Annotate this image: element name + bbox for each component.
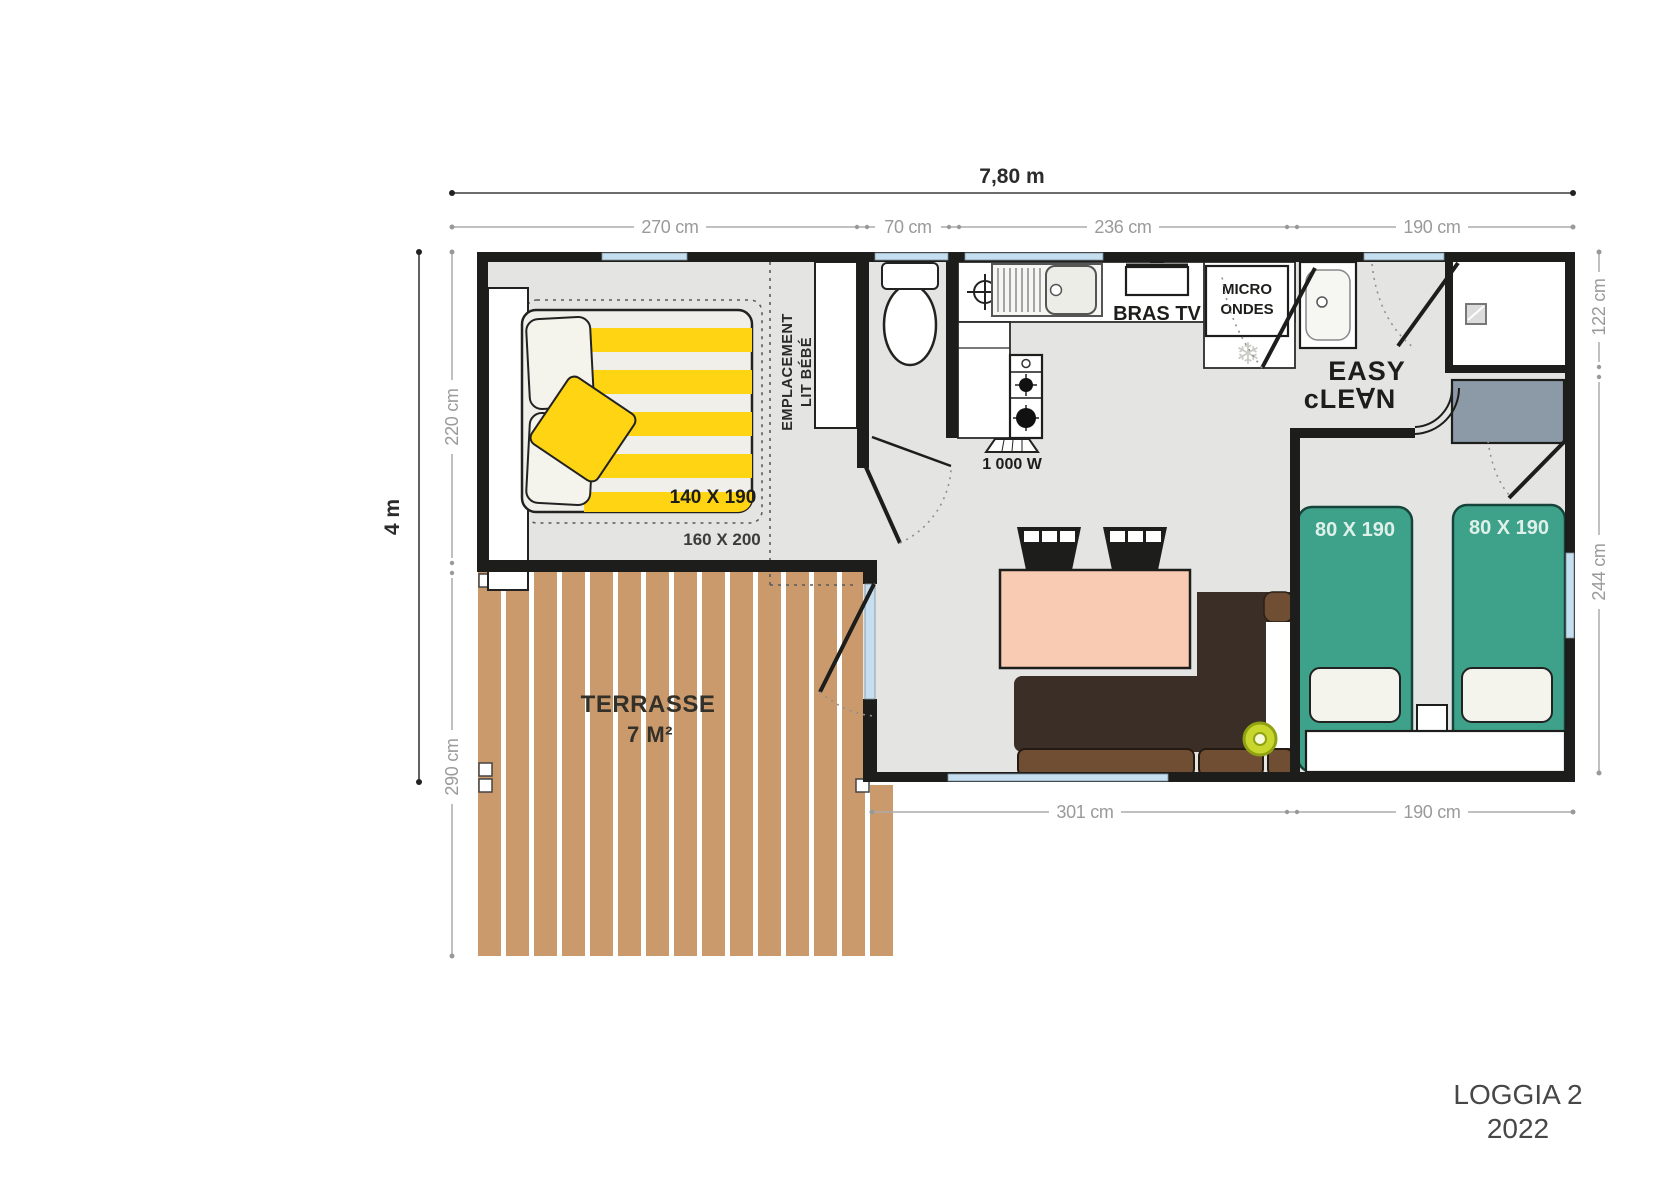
double-bed-size-label: 140 X 190 [670, 487, 757, 508]
stool-icon-center [1254, 733, 1266, 745]
fridge-snowflake-icon: ❄ [1235, 338, 1260, 371]
single-bed1-size-label: 80 X 190 [1315, 519, 1395, 541]
dim-top-4: 190 cm [1403, 217, 1460, 237]
toilet-icon [884, 285, 936, 365]
dim-top-3: 236 cm [1094, 217, 1151, 237]
dim-left-lower: 290 cm [442, 738, 462, 795]
microwave-label-line1: MICRO [1222, 281, 1272, 298]
plan-year: 2022 [1487, 1113, 1549, 1144]
window-bedroom2 [1566, 553, 1574, 638]
dim-right-lower: 244 cm [1589, 543, 1609, 600]
dim-top-2: 70 cm [884, 217, 932, 237]
terrace-planks-right [865, 785, 897, 956]
dim-left-upper: 220 cm [442, 388, 462, 445]
sink-drain-icon [1051, 285, 1062, 296]
window-wc [875, 253, 948, 260]
baby-cot-label-line1: EMPLACEMENT [780, 313, 796, 430]
terrace-deck: TERRASSE 7 M² [478, 572, 897, 956]
dim-right-upper: 122 cm [1589, 278, 1609, 335]
baby-cot-label-line2: LIT BÉBÉ [798, 337, 815, 407]
terrace-label: TERRASSE [581, 691, 716, 718]
floorplan-drawing: TERRASSE 7 M² 160 X 200 EMPLACEMENT LIT … [0, 0, 1666, 1178]
dim-overall-width: 7,80 m [979, 165, 1044, 188]
wc-room [882, 263, 938, 365]
terrace-post-icon [479, 779, 492, 792]
dining-chair-icon [1017, 527, 1081, 570]
foot-bench [1306, 731, 1565, 772]
pillow [1462, 668, 1552, 722]
dim-overall-depth: 4 m [381, 499, 404, 535]
easy-clean-logo-line2: cLE∀N [1304, 384, 1397, 414]
sink-icon [992, 264, 1102, 316]
plan-title: LOGGIA 2 [1453, 1079, 1582, 1110]
dim-bottom-left: 301 cm [1056, 802, 1113, 822]
dim-top-1: 270 cm [641, 217, 698, 237]
dining-table [1000, 570, 1190, 668]
bed-zone-label: 160 X 200 [683, 530, 761, 549]
toilet-tank-icon [882, 263, 938, 289]
terrace-post-icon [479, 763, 492, 776]
floorplan-page: TERRASSE 7 M² 160 X 200 EMPLACEMENT LIT … [0, 0, 1666, 1178]
single-bed2-size-label: 80 X 190 [1469, 517, 1549, 539]
dim-bottom-right: 190 cm [1403, 802, 1460, 822]
microwave-label-line2: ONDES [1220, 301, 1273, 318]
stove-icon [1010, 355, 1042, 438]
sofa-cushion [1268, 749, 1293, 776]
window-kitchen [965, 253, 1103, 260]
easy-clean-logo-line1: EASY [1328, 356, 1406, 386]
window-bathroom [1364, 253, 1444, 260]
terrace-planks [478, 572, 865, 956]
tv-label: BRAS TV [1113, 303, 1201, 325]
window-living [948, 774, 1168, 781]
heater-label: 1 000 W [982, 456, 1042, 473]
sofa-cushion [1018, 749, 1194, 776]
heater-icon [986, 439, 1038, 452]
window-bedroom1 [602, 253, 687, 260]
kitchen-low-counter [958, 322, 1010, 438]
tech-wardrobe [1452, 380, 1564, 443]
washbasin-icon [1300, 262, 1356, 348]
sofa-armrest [1264, 592, 1293, 622]
dining-chair-icon [1103, 527, 1167, 570]
pillow [1310, 668, 1400, 722]
bedside-table [1417, 705, 1447, 731]
terrace-area-label: 7 M² [627, 722, 673, 747]
bedroom1-wardrobe [815, 262, 857, 428]
